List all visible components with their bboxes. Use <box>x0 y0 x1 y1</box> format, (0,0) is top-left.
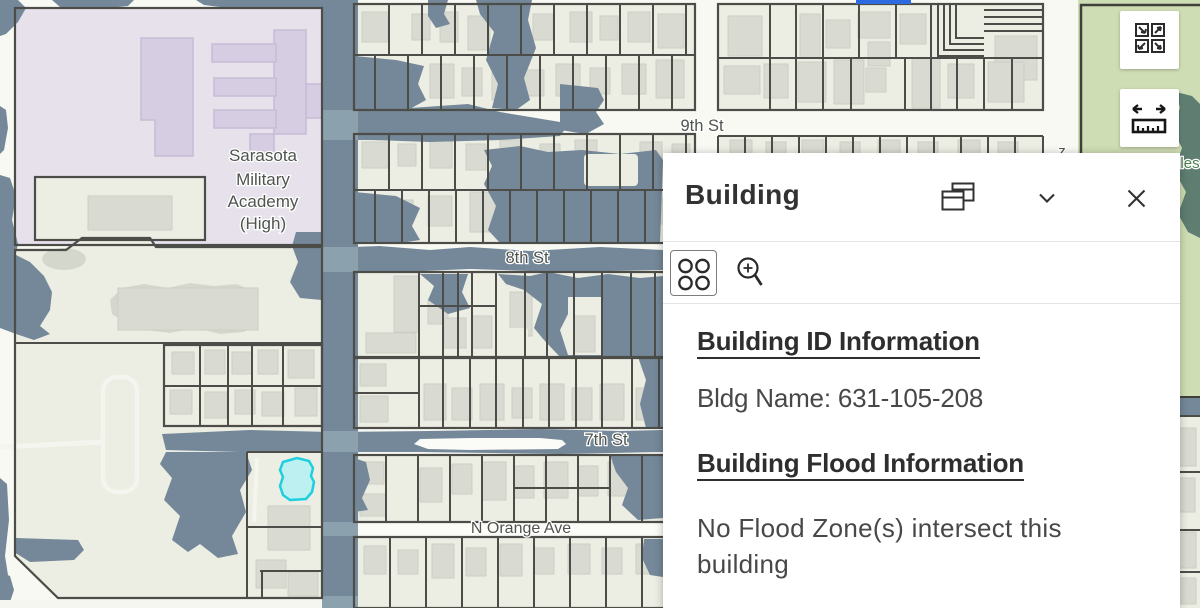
svg-text:7th St: 7th St <box>584 431 628 449</box>
svg-text:8th St: 8th St <box>505 249 549 267</box>
svg-text:Sarasota: Sarasota <box>229 146 298 165</box>
svg-text:Academy: Academy <box>228 192 299 211</box>
svg-text:N Orange Ave: N Orange Ave <box>471 520 571 537</box>
svg-text:(High): (High) <box>240 214 286 233</box>
svg-text:les: les <box>1180 155 1199 172</box>
svg-text:Military: Military <box>236 170 290 189</box>
svg-text:9th St: 9th St <box>680 117 724 135</box>
